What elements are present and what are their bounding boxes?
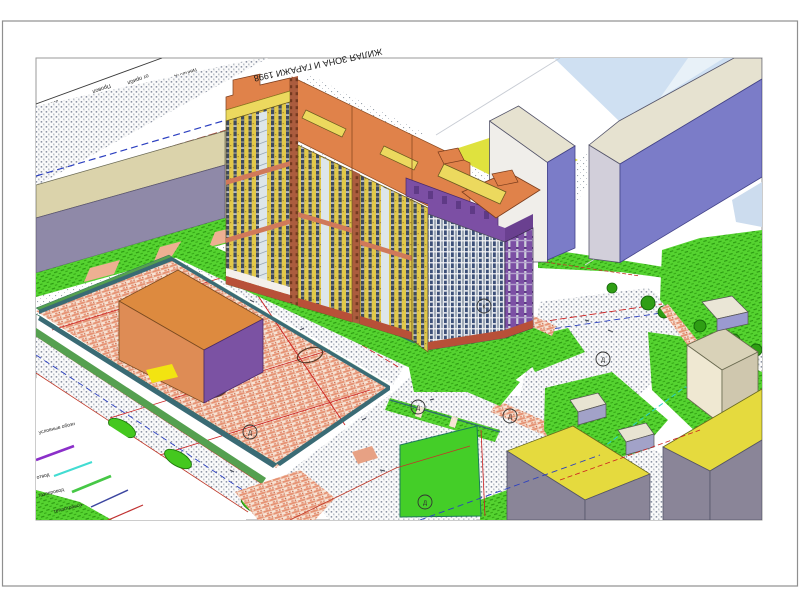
svg-text:д: д [248, 430, 252, 437]
svg-text:д: д [423, 500, 427, 507]
svg-text:д: д [601, 357, 605, 364]
svg-text:д: д [508, 414, 512, 421]
svg-text:д: д [416, 405, 420, 412]
